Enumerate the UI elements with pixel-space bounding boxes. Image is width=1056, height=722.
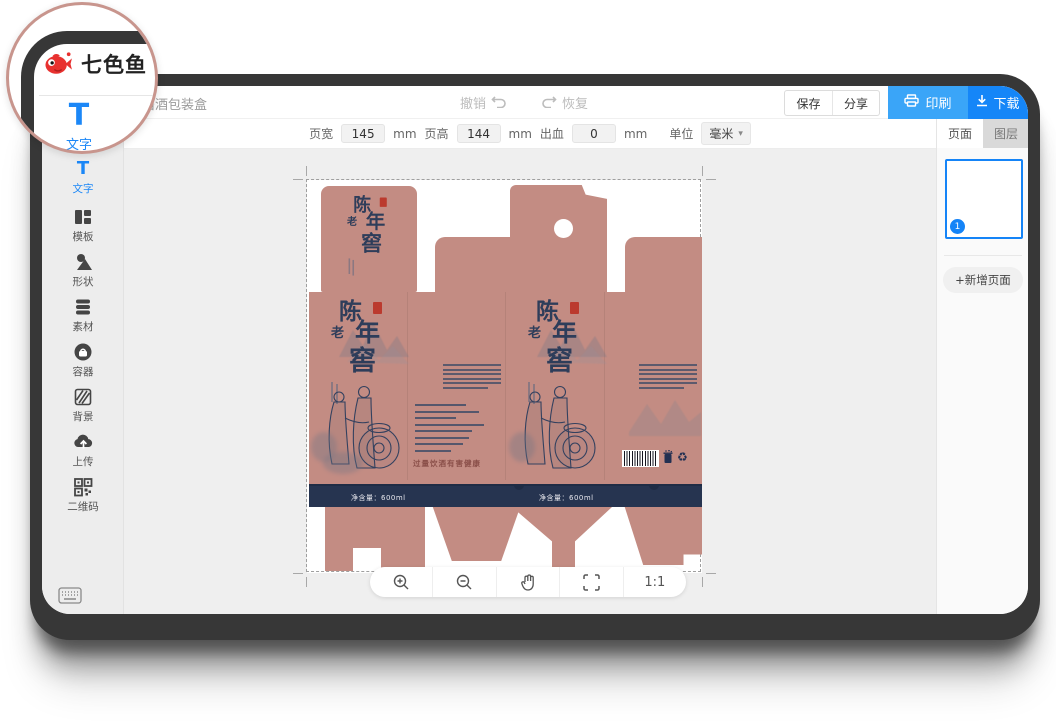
page-height-label: 页高 <box>425 125 449 142</box>
undo-label: 撤销 <box>460 93 486 112</box>
page-number-badge: 1 <box>950 219 965 234</box>
page-width-unit: mm <box>393 127 416 141</box>
recycle-icon: ♻ <box>677 451 688 463</box>
net-content-text: 净含量：600ml <box>539 493 594 503</box>
brand-title-front-1: 陈老年窖 <box>331 300 395 396</box>
product-spec-lines <box>415 404 497 456</box>
sidebar-item-background[interactable]: 背景 <box>42 387 124 429</box>
text-tool-magnified[interactable]: T 文字 <box>49 99 109 153</box>
dieline-top-flap-2 <box>435 237 520 292</box>
brand-title-front-2: 陈老年窖 <box>528 300 592 396</box>
sidebar-item-shape[interactable]: 形状 <box>42 252 124 294</box>
template-icon <box>73 207 93 227</box>
text-tool-label: 文字 <box>49 134 109 153</box>
container-icon <box>73 342 93 362</box>
hand-icon <box>521 574 535 591</box>
chevron-down-icon: ▾ <box>738 129 743 139</box>
cloud-upload-icon <box>73 432 94 452</box>
app-window-frame: 酱酒包装盒 撤销 恢复 保存 分享 印刷 下载 页宽 mm 页高 <box>30 74 1040 640</box>
trash-icon <box>663 450 673 464</box>
dieline-bottom-flap-3 <box>512 507 612 573</box>
red-seal <box>380 198 387 207</box>
dieline-main-body: 陈老年窖 <box>309 292 702 507</box>
sidebar-item-template[interactable]: 模板 <box>42 207 124 249</box>
shapes-icon <box>73 252 93 272</box>
layers-icon <box>73 297 93 317</box>
qrcode-icon <box>73 477 93 497</box>
zoom-out-icon <box>456 574 473 591</box>
mountain-art <box>629 392 701 446</box>
sidebar-item-text[interactable]: T 文字 <box>42 159 124 201</box>
download-icon <box>976 94 988 111</box>
unit-value: 毫米 <box>709 125 733 142</box>
app-logo-text: 七色鱼 <box>81 49 147 79</box>
brand-title-flap: 陈老年窖 <box>347 196 397 271</box>
redo-label: 恢复 <box>562 93 588 112</box>
page-thumbnail[interactable]: 1 <box>945 159 1023 239</box>
print-label: 印刷 <box>925 93 951 112</box>
canvas-zoom-toolbar: 1:1 <box>370 567 686 597</box>
actual-size-button[interactable]: 1:1 <box>623 567 686 597</box>
text-tool-icon: T <box>77 159 89 179</box>
ratio-label: 1:1 <box>644 575 665 590</box>
save-share-group: 保存 分享 <box>784 90 880 116</box>
tab-layers[interactable]: 图层 <box>983 119 1028 148</box>
bleed-label: 出血 <box>540 125 564 142</box>
net-content-text: 净含量：600ml <box>351 493 406 503</box>
dieline-bottom-flap-4 <box>618 507 702 565</box>
sidebar-item-upload[interactable]: 上传 <box>42 432 124 474</box>
sidebar-item-container[interactable]: 容器 <box>42 342 124 384</box>
zoom-in-icon <box>393 574 410 591</box>
download-button[interactable]: 下载 <box>968 86 1028 119</box>
dieline-bottom-flap-2 <box>429 507 524 561</box>
magnifier-loupe: 七色鱼 T 文字 <box>6 2 158 154</box>
loupe-divider <box>39 95 158 96</box>
right-panel: 页面 图层 1 +新增页面 <box>936 119 1028 614</box>
fit-screen-button[interactable] <box>559 567 622 597</box>
undo-icon <box>491 94 507 112</box>
barcode <box>622 450 659 467</box>
redo-icon <box>541 94 557 112</box>
printer-icon <box>904 94 919 111</box>
sidebar-item-material[interactable]: 素材 <box>42 297 124 339</box>
keyboard-shortcuts-button[interactable] <box>58 587 82 608</box>
tool-sidebar: T 文字 模板 形状 素材 容器 背景 上传 二维码 <box>42 119 124 614</box>
page-height-unit: mm <box>509 127 532 141</box>
red-seal <box>373 302 382 314</box>
fit-screen-icon <box>583 574 600 591</box>
dieline-top-flap-4 <box>625 237 702 292</box>
pan-tool-button[interactable] <box>496 567 559 597</box>
artboard[interactable]: 陈老年窖 陈老年窖 <box>307 180 702 573</box>
design-canvas[interactable]: 陈老年窖 陈老年窖 <box>124 149 936 614</box>
red-seal <box>570 302 579 314</box>
undo-button[interactable]: 撤销 <box>460 93 507 112</box>
dieline-top-flap-1: 陈老年窖 <box>321 186 417 292</box>
print-button[interactable]: 印刷 <box>888 86 968 119</box>
tab-pages[interactable]: 页面 <box>937 119 983 148</box>
bush-art <box>509 432 535 462</box>
history-controls: 撤销 恢复 <box>460 86 588 119</box>
bleed-input[interactable] <box>572 124 616 143</box>
info-paragraph <box>443 364 501 391</box>
page-height-input[interactable] <box>457 124 501 143</box>
header-bar: 酱酒包装盒 撤销 恢复 保存 分享 印刷 下载 <box>42 86 1028 119</box>
dimension-bar: 页宽 mm 页高 mm 出血 mm 单位 毫米 ▾ <box>124 119 936 149</box>
bleed-unit: mm <box>624 127 647 141</box>
right-panel-tabs: 页面 图层 <box>937 119 1028 148</box>
background-icon <box>73 387 93 407</box>
panel-divider <box>944 255 1022 256</box>
share-button[interactable]: 分享 <box>832 91 879 115</box>
unit-label: 单位 <box>669 125 693 142</box>
unit-dropdown[interactable]: 毫米 ▾ <box>701 122 751 145</box>
zoom-out-button[interactable] <box>432 567 495 597</box>
dieline-bottom-flap-1 <box>325 507 425 571</box>
recycle-icons: ♻ <box>663 450 688 464</box>
sidebar-item-qrcode[interactable]: 二维码 <box>42 477 124 519</box>
net-content-band: 净含量：600ml 净含量：600ml <box>309 484 702 507</box>
alcohol-warning-text: 过量饮酒有害健康 <box>413 458 481 469</box>
fish-logo-icon <box>43 51 73 77</box>
app-logo: 七色鱼 <box>43 49 147 79</box>
app-window: 酱酒包装盒 撤销 恢复 保存 分享 印刷 下载 页宽 mm 页高 <box>42 86 1028 614</box>
hang-hole <box>554 219 573 238</box>
dieline-top-flap-3 <box>510 185 607 292</box>
zoom-in-button[interactable] <box>370 567 432 597</box>
redo-button[interactable]: 恢复 <box>541 93 588 112</box>
page-width-label: 页宽 <box>309 125 333 142</box>
download-label: 下载 <box>993 93 1019 112</box>
bush-art <box>323 452 363 474</box>
info-paragraph <box>639 364 697 391</box>
add-page-button[interactable]: +新增页面 <box>943 267 1023 293</box>
page-width-input[interactable] <box>341 124 385 143</box>
text-tool-icon: T <box>49 99 109 132</box>
save-button[interactable]: 保存 <box>785 91 832 115</box>
